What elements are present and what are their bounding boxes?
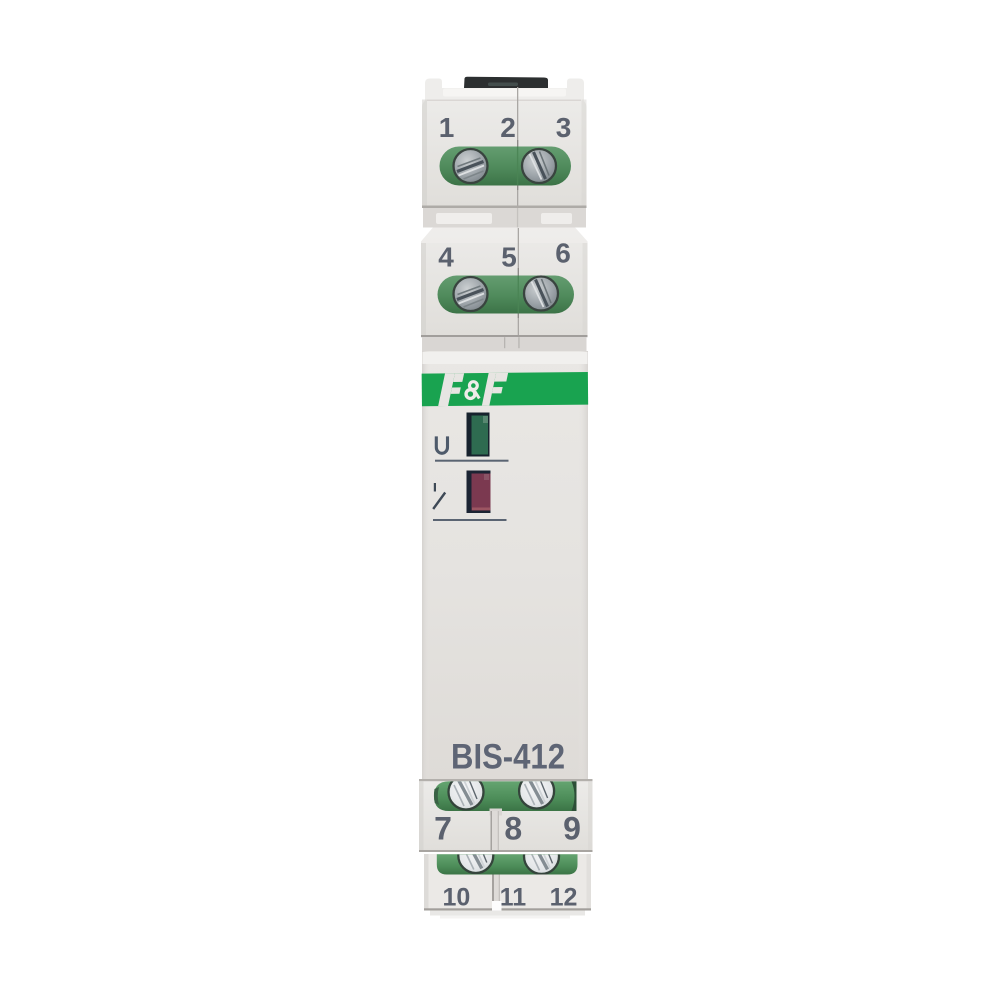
svg-text:7: 7 — [434, 811, 452, 847]
svg-text:2: 2 — [500, 112, 516, 143]
svg-text:6: 6 — [555, 238, 571, 269]
svg-text:8: 8 — [504, 811, 522, 847]
svg-text:10: 10 — [442, 884, 470, 912]
svg-text:5: 5 — [501, 242, 517, 273]
svg-text:9: 9 — [563, 811, 581, 847]
svg-text:12: 12 — [550, 884, 578, 912]
svg-text:3: 3 — [556, 112, 572, 143]
svg-text:11: 11 — [500, 884, 527, 912]
svg-text:BIS-412: BIS-412 — [451, 737, 565, 777]
svg-text:1: 1 — [439, 112, 455, 143]
svg-text:4: 4 — [438, 242, 454, 273]
